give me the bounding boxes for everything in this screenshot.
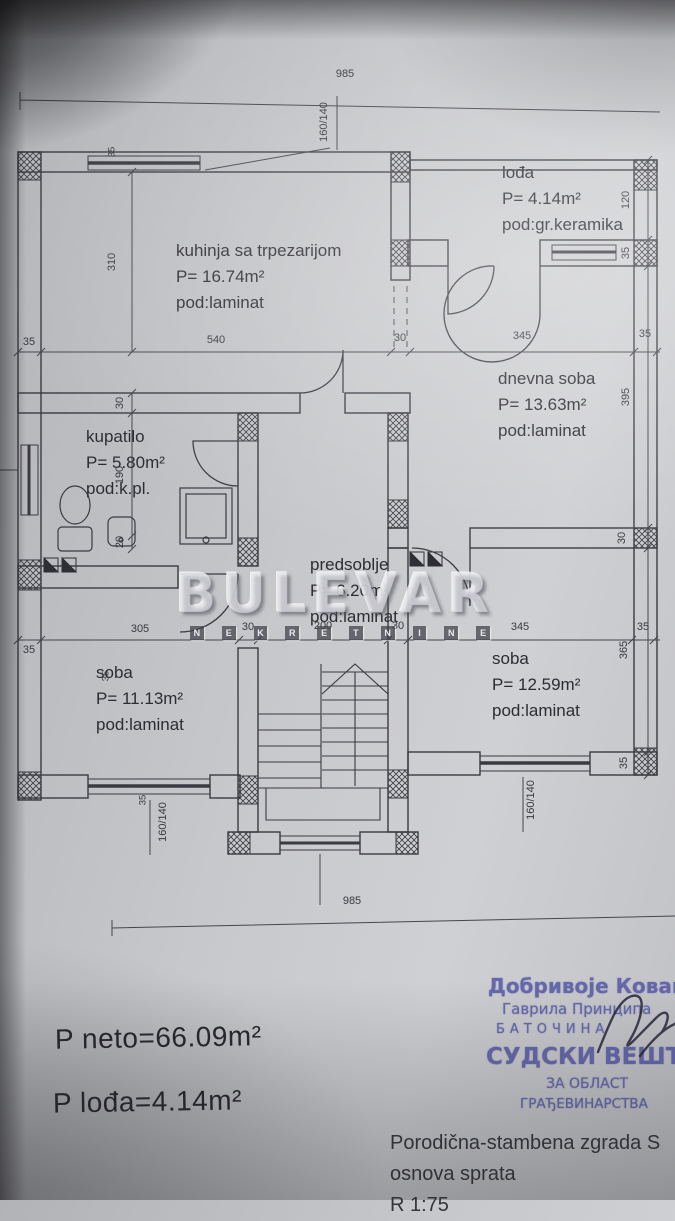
dimension-label: 120 (620, 191, 632, 209)
dimension-label: 30 (114, 397, 126, 409)
stamp-title: СУДСКИ ВЕШТА (486, 1044, 675, 1070)
dimension-label: 160/140 (525, 780, 537, 820)
loggia-area-text: P lođa=4.14m² (53, 1084, 242, 1119)
dimension-label: 30 (616, 532, 628, 544)
watermark-letter: E (222, 626, 236, 640)
stamp-city: БАТОЧИНА (496, 1022, 609, 1037)
dimension-label: 160/140 (318, 102, 330, 142)
watermark-letter: E (317, 626, 331, 640)
stamp-name: Добривоје Кованс (488, 974, 675, 998)
watermark-subtitle: NEKRETNINE (190, 626, 490, 640)
dimension-label: 35 (639, 328, 651, 340)
subtitle-line: osnova sprata (390, 1159, 660, 1190)
title-line: Porodična-stambena zgrada S (390, 1128, 660, 1159)
dimension-label: 310 (106, 253, 118, 271)
dimension-label: 345 (513, 330, 531, 342)
watermark-letter: K (254, 626, 268, 640)
dimension-label: 35 (620, 247, 632, 259)
stamp-address: Гаврила Принципа (502, 1000, 651, 1018)
dimension-label: 35 (23, 644, 35, 656)
dimension-label: 35 (138, 795, 149, 806)
dimension-label: 540 (207, 334, 225, 346)
watermark-letter: E (476, 626, 490, 640)
dimension-label: 20 (114, 536, 126, 548)
dimension-label: 985 (336, 68, 354, 80)
watermark-letter: N (190, 626, 204, 640)
watermark-logo: BULEVAR (150, 562, 520, 625)
stamp-field: ГРАЂЕВИНАРСТВА (520, 1096, 648, 1112)
net-area-text: P neto=66.09m² (55, 1020, 262, 1056)
stamp-area-line: ЗА ОБЛАСТ (546, 1076, 628, 1092)
watermark-letter: T (349, 626, 363, 640)
dimension-label: 35 (101, 671, 112, 682)
dimension-label: 365 (618, 641, 630, 659)
title-block: Porodična-stambena zgrada S osnova sprat… (390, 1128, 660, 1221)
scale-line: R 1:75 (390, 1190, 660, 1221)
floorplan-photo: { "rooms": [ {"name":"kuhinja sa trpezar… (0, 0, 675, 1200)
dimension-label: 35 (618, 757, 630, 769)
dimension-label: 35 (107, 147, 118, 158)
dimension-label: 395 (620, 388, 632, 406)
dimension-label: 30 (394, 332, 406, 344)
dimension-label: 985 (343, 895, 361, 907)
watermark-letter: N (381, 626, 395, 640)
watermark-letter: I (413, 626, 427, 640)
dimension-label: 160/140 (157, 802, 169, 842)
dimension-label: 35 (637, 621, 649, 633)
watermark-letter: N (444, 626, 458, 640)
watermark-letter: R (285, 626, 299, 640)
dimension-label: 305 (131, 623, 149, 635)
dimension-label: 190 (114, 466, 126, 484)
dimension-label: 35 (23, 336, 35, 348)
